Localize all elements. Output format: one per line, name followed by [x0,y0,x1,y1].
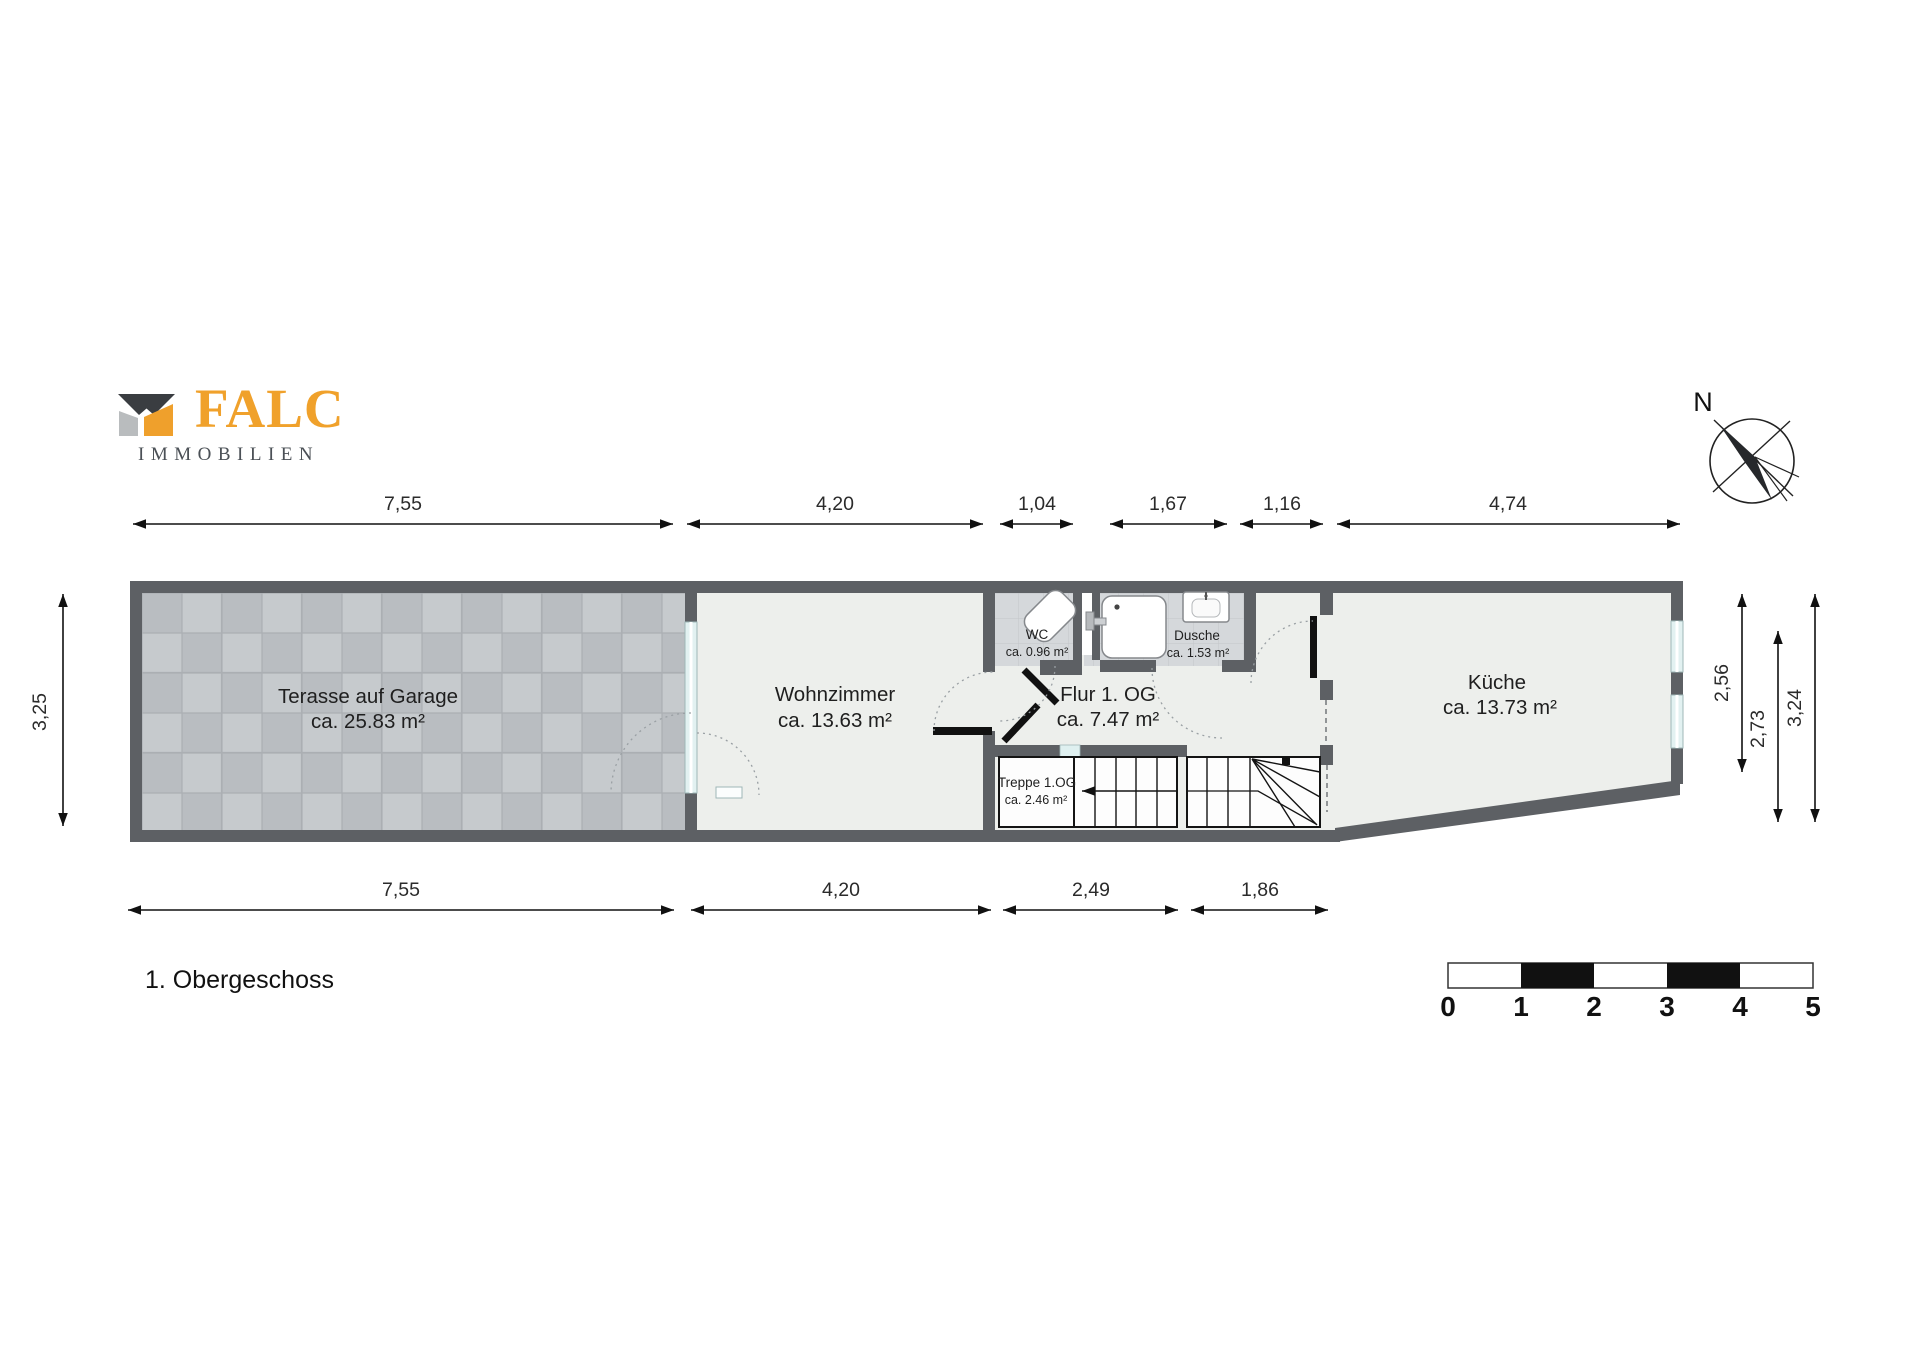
svg-text:3,25: 3,25 [29,693,51,731]
svg-text:4,20: 4,20 [816,493,854,515]
svg-text:2,56: 2,56 [1711,664,1733,702]
svg-text:0: 0 [1440,991,1456,1022]
floorplan-page: FALC IMMOBILIEN 1. Obergeschoss [0,0,1920,1357]
floorplan-drawing: Terasse auf Garage ca. 25.83 m² Wohnzimm… [0,0,1920,1357]
svg-text:ca. 1.53 m²: ca. 1.53 m² [1167,646,1230,660]
svg-text:WC: WC [1026,627,1049,642]
svg-text:ca. 7.47 m²: ca. 7.47 m² [1057,708,1160,731]
svg-text:2,73: 2,73 [1747,710,1769,748]
svg-text:3,24: 3,24 [1784,689,1806,727]
svg-text:1: 1 [1513,991,1529,1022]
svg-text:ca. 13.73 m²: ca. 13.73 m² [1443,696,1557,719]
svg-text:1,04: 1,04 [1018,493,1056,515]
sink-icon [1183,592,1229,622]
staircase [999,757,1320,827]
svg-text:7,55: 7,55 [384,493,422,515]
svg-text:2,49: 2,49 [1072,879,1110,901]
svg-text:1,67: 1,67 [1149,493,1187,515]
dimension-labels-bottom: 7,55 4,20 2,49 1,86 [382,879,1279,901]
compass-rose: N [1693,387,1799,503]
svg-text:3: 3 [1659,991,1675,1022]
svg-text:2: 2 [1586,991,1602,1022]
svg-text:Wohnzimmer: Wohnzimmer [775,683,896,706]
svg-text:1,86: 1,86 [1241,879,1279,901]
svg-text:Dusche: Dusche [1174,628,1220,643]
svg-text:4: 4 [1732,991,1748,1022]
svg-text:4,20: 4,20 [822,879,860,901]
svg-text:5: 5 [1805,991,1821,1022]
svg-text:ca. 0.96 m²: ca. 0.96 m² [1006,645,1069,659]
svg-text:4,74: 4,74 [1489,493,1527,515]
svg-text:Treppe 1.OG: Treppe 1.OG [998,775,1076,790]
svg-text:Terasse auf Garage: Terasse auf Garage [278,685,458,708]
svg-text:Flur 1. OG: Flur 1. OG [1060,683,1156,706]
compass-north-label: N [1693,387,1713,417]
dimension-labels-top: 7,55 4,20 1,04 1,67 1,16 4,74 [384,493,1527,515]
svg-text:7,55: 7,55 [382,879,420,901]
svg-text:ca. 2.46 m²: ca. 2.46 m² [1005,793,1068,807]
compass-needle [1719,424,1772,500]
svg-text:1,16: 1,16 [1263,493,1301,515]
svg-text:ca. 25.83 m²: ca. 25.83 m² [311,710,425,733]
scale-bar: 0 1 2 3 4 5 [1440,963,1821,1022]
svg-text:ca. 13.63 m²: ca. 13.63 m² [778,709,892,732]
svg-text:Küche: Küche [1468,671,1526,694]
